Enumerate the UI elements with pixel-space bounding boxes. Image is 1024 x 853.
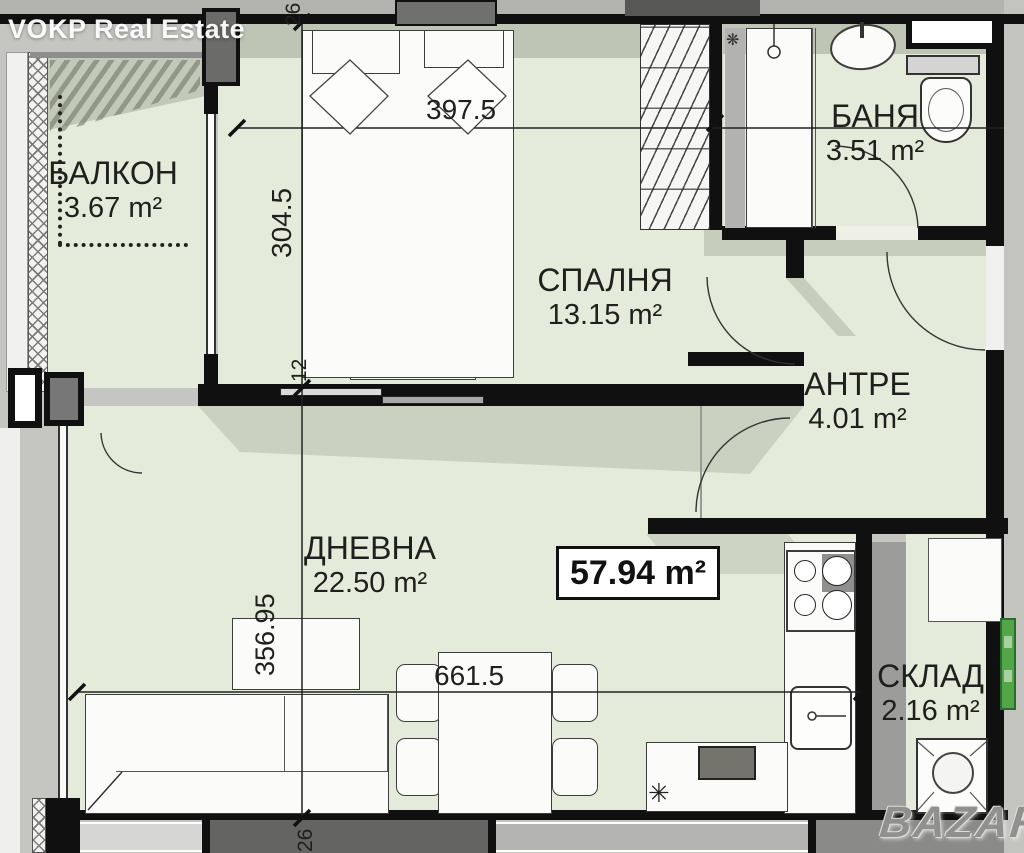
entrance-door-arc	[887, 252, 985, 350]
kitchen-note-symbol: ✳	[648, 778, 670, 809]
room-area: 13.15 m²	[520, 299, 690, 332]
room-area: 4.01 m²	[785, 403, 930, 436]
dim-living-depth: 356.95	[250, 554, 281, 676]
room-label-balcony: БАЛКОН 3.67 m²	[38, 155, 188, 225]
dim-wall-bottom: 26	[294, 812, 318, 852]
entry-living-door-arc	[696, 418, 790, 512]
room-name: СКЛАД	[858, 658, 1003, 695]
room-label-entry: АНТРЕ 4.01 m²	[785, 366, 930, 436]
sofa-corner-line	[88, 772, 122, 810]
dim-wall-top: 26	[282, 0, 306, 26]
kitchen-faucet-dot	[808, 712, 816, 720]
room-area: 3.51 m²	[805, 135, 945, 168]
balcony-door-arc	[101, 433, 142, 473]
dim-bedroom-depth: 304.5	[266, 148, 298, 258]
room-label-bedroom: СПАЛНЯ 13.15 m²	[520, 262, 690, 332]
room-name: БАЛКОН	[38, 155, 188, 192]
total-area-value: 57.94 m²	[570, 554, 706, 593]
agency-watermark: VOKP Real Estate	[8, 14, 245, 45]
room-area: 22.50 m²	[285, 567, 455, 600]
dim-living-width: 661.5	[434, 660, 504, 692]
shower-head	[768, 46, 780, 58]
bedroom-door-arc	[707, 277, 795, 364]
room-label-bathroom: БАНЯ 3.51 m²	[805, 98, 945, 168]
dim-bedroom-width: 397.5	[426, 94, 496, 126]
room-area: 3.67 m²	[38, 192, 188, 225]
room-name: ДНЕВНА	[285, 530, 455, 567]
room-area: 2.16 m²	[858, 695, 1003, 728]
room-name: АНТРЕ	[785, 366, 930, 403]
room-label-living: ДНЕВНА 22.50 m²	[285, 530, 455, 600]
room-name: СПАЛНЯ	[520, 262, 690, 299]
room-name: БАНЯ	[805, 98, 945, 135]
floor-plan-canvas: ❋ ✳	[0, 0, 1024, 853]
dimension-ticks	[69, 14, 870, 826]
dim-wall-partition: 12	[288, 346, 312, 382]
total-area-box: 57.94 m²	[556, 546, 720, 600]
room-label-storage: СКЛАД 2.16 m²	[858, 658, 1003, 728]
portal-watermark: BAZAR	[877, 798, 1024, 848]
